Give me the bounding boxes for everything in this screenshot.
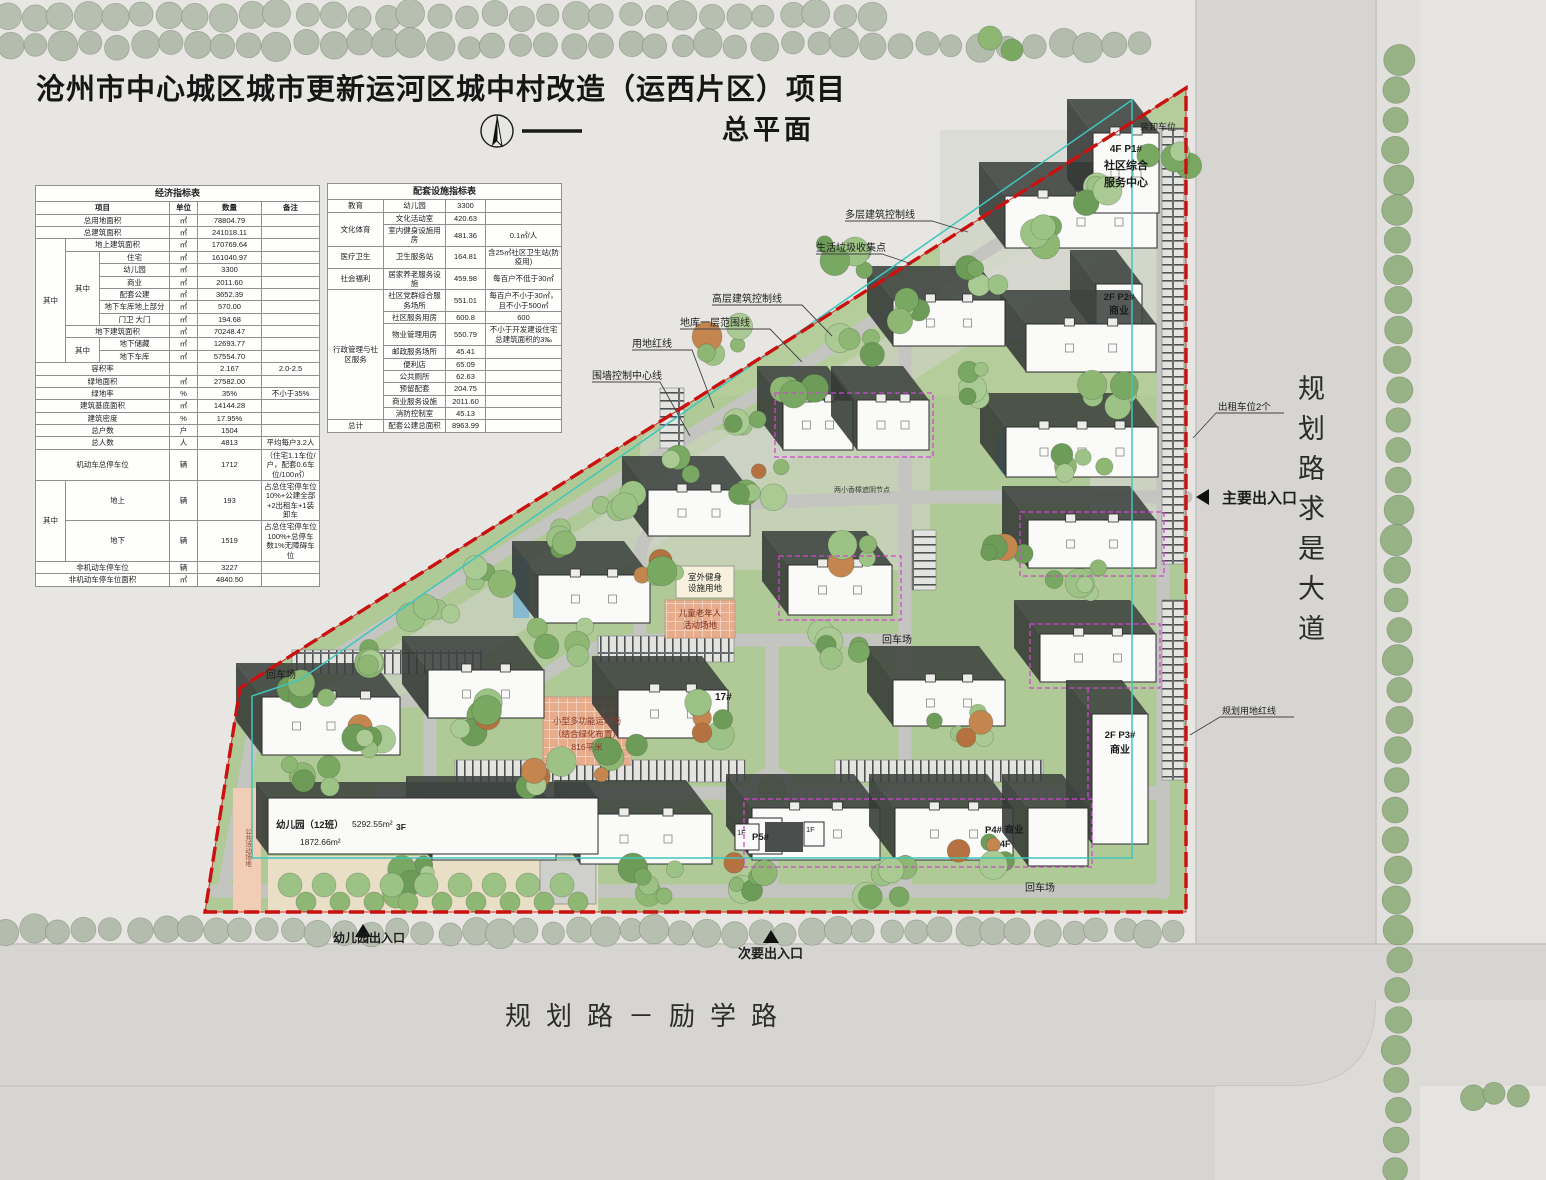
tree	[947, 839, 970, 862]
tree	[321, 777, 340, 796]
tree	[752, 860, 778, 886]
tree	[1073, 33, 1103, 63]
tree	[489, 570, 517, 598]
table-cell: 2011.60	[446, 395, 486, 407]
tree	[346, 873, 370, 897]
table-cell: 占总住宅停车位10%+公建全部+2出租车+1装卸车	[262, 480, 320, 521]
tree	[773, 459, 789, 475]
tree	[799, 918, 826, 945]
stair-core	[925, 674, 935, 682]
economic-indicators-table: 经济指标表项目单位数量备注总用地面积㎡78804.79总建筑面积㎡241018.…	[35, 185, 319, 587]
tree	[1063, 921, 1086, 944]
label-building-17: 17#	[715, 692, 732, 703]
tree	[317, 689, 335, 707]
tree	[889, 887, 909, 907]
table-cell: 其中	[36, 239, 66, 363]
tree	[1383, 107, 1408, 132]
table-cell: 辆	[170, 480, 198, 521]
tree	[619, 31, 645, 57]
tree	[668, 1, 697, 30]
table-cell: 2.167	[198, 363, 262, 375]
tree	[521, 758, 546, 783]
tree	[692, 723, 712, 743]
tree	[978, 26, 1002, 50]
tree	[588, 4, 613, 29]
tree	[426, 32, 455, 61]
tree	[1162, 920, 1184, 942]
label-turnaround-1: 回车场	[266, 668, 296, 681]
table-cell: 不小于开发建设住宅总建筑面积的3‰	[486, 324, 562, 346]
tree	[1483, 1082, 1505, 1104]
tree	[24, 34, 47, 57]
tree	[979, 851, 1008, 880]
table-cell	[262, 338, 320, 350]
tree	[395, 28, 425, 58]
label-sports-1: 小型多功能运动场	[553, 716, 621, 726]
table-cell: 551.01	[446, 290, 486, 312]
tree	[642, 34, 667, 59]
table-cell: 地下车库地上部分	[100, 301, 170, 313]
stair-core	[663, 808, 673, 816]
tree	[1384, 165, 1414, 195]
label-p4-1: P4# 商业	[985, 824, 1024, 836]
tree	[662, 450, 680, 468]
label-p4-2: 4F	[1000, 839, 1011, 849]
stair-core	[711, 484, 721, 492]
label-turnaround-3: 回车场	[1025, 881, 1055, 894]
stair-core	[1064, 318, 1074, 326]
table-cell	[262, 214, 320, 226]
table-cell: 物业管理用房	[384, 324, 446, 346]
table-cell: 文化体育	[328, 212, 384, 246]
tree	[210, 34, 235, 59]
tree	[456, 6, 479, 29]
tree	[398, 892, 418, 912]
table-cell	[486, 420, 562, 432]
tree	[411, 922, 434, 945]
stair-core	[1066, 514, 1076, 522]
table-cell	[486, 212, 562, 224]
tree	[713, 710, 733, 730]
tree	[466, 892, 486, 912]
tree	[448, 873, 472, 897]
table-cell: 占总住宅停车位100%+总停车数1%无障碍车位	[262, 521, 320, 562]
tree	[1382, 136, 1409, 163]
table-cell: 数量	[198, 202, 262, 214]
stair-core	[361, 691, 371, 699]
label-p2-1: 2F P2#	[1104, 292, 1135, 303]
tree	[1102, 32, 1127, 57]
south-road	[0, 944, 1546, 1180]
tree	[567, 645, 589, 667]
tree	[1034, 920, 1061, 947]
table-cell: 570.00	[198, 301, 262, 313]
east-road-name: 规划路求是大道	[1290, 374, 1329, 654]
tree	[760, 484, 787, 511]
tree	[724, 853, 745, 874]
table-cell: 备注	[262, 202, 320, 214]
table-cell: 161040.97	[198, 251, 262, 263]
tree	[645, 5, 668, 28]
tree	[255, 918, 278, 941]
tree	[887, 308, 913, 334]
label-fitness-2: 设施用地	[688, 583, 723, 593]
table-cell: 绿地面积	[36, 375, 170, 387]
table-cell: 邮政服务场所	[384, 346, 446, 358]
tree	[428, 4, 452, 28]
table-cell: 社区服务用房	[384, 312, 446, 324]
table-cell	[486, 370, 562, 382]
tree	[1110, 372, 1138, 400]
table-cell: 户	[170, 425, 198, 437]
table-cell: 3300	[446, 200, 486, 212]
tree	[552, 531, 576, 555]
tree	[236, 33, 261, 58]
table-cell: 行政管理与社区服务	[328, 290, 384, 420]
tree	[294, 29, 319, 54]
label-sports-2: （结合绿化布置）	[553, 729, 621, 739]
tree	[1387, 377, 1413, 403]
tree	[292, 770, 314, 792]
table-cell: 1712	[198, 449, 262, 480]
tree	[1384, 737, 1411, 764]
tree	[988, 275, 1008, 295]
table-cell: ㎡	[170, 313, 198, 325]
label-waste-point: 生活垃圾收集点	[816, 241, 886, 254]
table-cell: 193	[198, 480, 262, 521]
table-cell: 社会福利	[328, 268, 384, 290]
tree	[482, 1, 508, 27]
tree	[177, 916, 203, 942]
table-cell: ㎡	[170, 574, 198, 586]
building-footprint	[1040, 634, 1156, 682]
tree	[694, 29, 723, 58]
tree	[974, 362, 988, 376]
table-cell: 241018.11	[198, 227, 262, 239]
tree	[1382, 797, 1408, 823]
tree	[330, 892, 350, 912]
tree	[48, 31, 78, 61]
tree	[358, 655, 379, 676]
table-cell: 65.09	[446, 358, 486, 370]
tree	[312, 873, 336, 897]
table-cell: ㎡	[170, 227, 198, 239]
tree	[463, 555, 487, 579]
subtitle-block: 总平面	[478, 108, 815, 147]
tree	[102, 3, 129, 30]
tree	[1045, 571, 1063, 589]
tree	[562, 34, 587, 59]
stair-core	[1108, 318, 1118, 326]
building-footprint	[857, 400, 929, 450]
tree	[182, 3, 209, 30]
tree	[594, 767, 608, 781]
table-cell	[262, 276, 320, 288]
tree	[700, 4, 725, 29]
tree	[1051, 443, 1073, 465]
tree	[20, 914, 49, 943]
table-cell: 总计	[328, 420, 384, 432]
table-cell: 地下车库	[100, 350, 170, 362]
tree	[639, 914, 669, 944]
table-cell	[262, 350, 320, 362]
table-cell: 幼儿园	[384, 200, 446, 212]
stair-core	[619, 808, 629, 816]
table-cell: 其中	[66, 338, 100, 363]
tree	[472, 695, 502, 725]
label-kg-area1: 5292.55m²	[352, 819, 393, 829]
table-cell: ㎡	[170, 400, 198, 412]
site-plan-page: 多层建筑控制线 生活垃圾收集点 高层建筑控制线 地库一层范围线 用地红线 围墙控…	[0, 0, 1546, 1180]
tree	[1383, 1127, 1409, 1153]
tree	[567, 917, 592, 942]
tree	[858, 885, 882, 909]
table-cell: 170769.64	[198, 239, 262, 251]
tree	[987, 838, 1001, 852]
tree	[722, 922, 748, 948]
table-cell	[262, 251, 320, 263]
stair-core	[818, 559, 828, 567]
tree	[74, 2, 103, 31]
tree	[1385, 978, 1410, 1003]
table-cell: 公共厕所	[384, 370, 446, 382]
tree	[905, 920, 929, 944]
tree	[185, 32, 212, 59]
label-taxi-spaces: 出租车位2个	[1218, 401, 1271, 413]
table-cell: 地下建筑面积	[66, 326, 170, 338]
tree	[356, 729, 373, 746]
table-cell	[262, 227, 320, 239]
tree	[105, 35, 130, 60]
tree	[808, 32, 831, 55]
table-cell: 17.95%	[198, 412, 262, 424]
tree	[1133, 920, 1161, 948]
table-cell: ㎡	[170, 288, 198, 300]
stair-core	[500, 664, 510, 672]
tree	[320, 2, 346, 28]
tree	[304, 920, 331, 947]
tree	[132, 30, 160, 58]
table-cell: 420.63	[446, 212, 486, 224]
table-cell: 消防控制室	[384, 408, 446, 420]
table-cell	[486, 383, 562, 395]
table-cell: 预留配套	[384, 383, 446, 395]
tree	[981, 544, 997, 560]
label-kg-floors: 3F	[396, 822, 406, 832]
label-turnaround-2: 回车场	[882, 633, 912, 646]
tree	[537, 4, 559, 26]
tree	[751, 33, 779, 61]
table-cell: 辆	[170, 449, 198, 480]
table-cell	[262, 264, 320, 276]
label-kindergarten-entrance: 幼儿园出入口	[333, 930, 405, 945]
table-cell: 3300	[198, 264, 262, 276]
table-cell: ㎡	[170, 375, 198, 387]
tree	[0, 32, 24, 59]
tree	[828, 530, 857, 559]
tree	[1387, 618, 1412, 643]
tree	[1077, 576, 1094, 593]
table-cell: 其中	[66, 251, 100, 325]
tree	[881, 920, 904, 943]
tree	[967, 260, 984, 277]
tree	[730, 338, 745, 353]
table-cell	[262, 326, 320, 338]
building-footprint	[1026, 324, 1156, 372]
tree	[724, 415, 742, 433]
tree	[860, 33, 887, 60]
facilities-indicators-table: 配套设施指标表教育幼儿园3300文化体育文化活动室420.63室内健身设施用房4…	[327, 183, 561, 433]
table-cell: ㎡	[170, 251, 198, 263]
tree	[550, 873, 574, 897]
tree	[486, 919, 516, 949]
table-cell	[262, 400, 320, 412]
tree	[482, 873, 506, 897]
stair-core	[969, 802, 979, 810]
tree	[668, 921, 692, 945]
label-kg-name: 幼儿园（12班）	[276, 819, 344, 831]
tree	[591, 917, 621, 947]
label-sports-3: 816平米	[571, 742, 603, 752]
table-cell: 70248.47	[198, 326, 262, 338]
table-cell: 医疗卫生	[328, 246, 384, 268]
table-cell: 平均每户3.2人	[262, 437, 320, 449]
tree	[1387, 677, 1412, 702]
children-elderly-area	[665, 600, 735, 638]
tree	[441, 605, 459, 623]
tree	[1385, 316, 1413, 344]
tree	[851, 919, 874, 942]
table-cell: ㎡	[170, 301, 198, 313]
tree	[1384, 44, 1415, 75]
tree	[1386, 1097, 1412, 1123]
table-cell: 经济指标表	[36, 186, 320, 202]
tree	[1385, 1007, 1412, 1034]
tree	[156, 2, 183, 29]
table-cell: 78804.79	[198, 214, 262, 226]
table-cell: 每百户不低于30㎡	[486, 268, 562, 290]
tree	[71, 917, 96, 942]
table-cell: 45.41	[446, 346, 486, 358]
table-cell: 57554.70	[198, 350, 262, 362]
tree	[239, 1, 266, 28]
tree	[513, 918, 538, 943]
stair-core	[1038, 190, 1048, 198]
tree	[647, 556, 677, 586]
tree	[1380, 524, 1412, 556]
table-cell: 文化活动室	[384, 212, 446, 224]
label-planning-red-line: 规划用地红线	[1222, 705, 1276, 716]
label-children-elderly-1: 儿童老年人	[679, 608, 722, 618]
table-cell: 含25㎡社区卫生站(防疫用)	[486, 246, 562, 268]
tree	[509, 6, 534, 31]
tree	[1031, 215, 1056, 240]
table-cell: %	[170, 412, 198, 424]
table-cell: 2.0-2.5	[262, 363, 320, 375]
tree	[802, 0, 830, 28]
table-cell: ㎡	[170, 276, 198, 288]
tree	[1385, 467, 1411, 493]
stair-core	[1108, 514, 1118, 522]
tree	[296, 3, 319, 26]
tree	[927, 713, 943, 729]
table-cell: 550.79	[446, 324, 486, 346]
tree	[282, 918, 306, 942]
table-cell: 教育	[328, 200, 384, 212]
tree	[685, 689, 712, 716]
tree	[1382, 827, 1408, 853]
tree	[782, 31, 805, 54]
table-cell	[170, 363, 198, 375]
tree	[204, 918, 230, 944]
table-cell: 商业	[100, 276, 170, 288]
tree	[320, 32, 348, 60]
tree	[969, 710, 993, 734]
tree	[1385, 286, 1412, 313]
tree	[534, 634, 559, 659]
tree	[749, 411, 766, 428]
table-cell: ㎡	[170, 264, 198, 276]
tree	[693, 919, 721, 947]
tree	[752, 5, 774, 27]
table-cell: 门卫 大门	[100, 313, 170, 325]
table-cell	[262, 301, 320, 313]
label-red-line: 用地红线	[632, 337, 672, 350]
tree	[697, 344, 715, 362]
stair-core	[1112, 628, 1122, 636]
tree	[1004, 918, 1030, 944]
tree	[879, 857, 904, 882]
table-cell: 204.75	[446, 383, 486, 395]
table-cell: 3227	[198, 561, 262, 573]
tree	[451, 719, 470, 738]
stair-core	[1115, 421, 1125, 429]
tree	[820, 647, 843, 670]
tree	[1056, 464, 1074, 482]
tree	[1387, 947, 1413, 973]
label-p3-2: 商业	[1110, 743, 1130, 756]
label-main-entrance: 主要出入口	[1222, 489, 1297, 507]
table-cell: 164.81	[446, 246, 486, 268]
tree	[261, 32, 290, 61]
table-cell	[486, 395, 562, 407]
table-cell: 45.13	[446, 408, 486, 420]
tree	[834, 5, 857, 28]
tree	[1384, 495, 1414, 525]
table-cell: 辆	[170, 521, 198, 562]
label-camphor-node: 两小香樟遮阴节点	[834, 485, 890, 494]
table-cell	[262, 288, 320, 300]
label-1f-b: 1F	[806, 825, 815, 834]
tree	[1384, 588, 1408, 612]
tree	[1384, 768, 1409, 793]
tree	[45, 920, 69, 944]
table-cell: （住宅1.1车位/户，配套0.6车位/100㎡）	[262, 449, 320, 480]
tree	[396, 0, 425, 28]
tree	[79, 31, 102, 54]
label-secondary-entrance: 次要出入口	[738, 946, 803, 961]
tree	[830, 28, 859, 57]
page-title: 沧州市中心城区城市更新运河区城中村改造（运西片区）项目	[36, 66, 846, 108]
stair-core	[1074, 628, 1084, 636]
tree	[888, 34, 913, 59]
stair-core	[1077, 421, 1087, 429]
tree	[1383, 915, 1413, 945]
table-cell: 配套公建总面积	[384, 420, 446, 432]
tree	[1384, 856, 1412, 884]
table-cell: 绿地率	[36, 387, 170, 399]
tree	[1022, 35, 1046, 59]
